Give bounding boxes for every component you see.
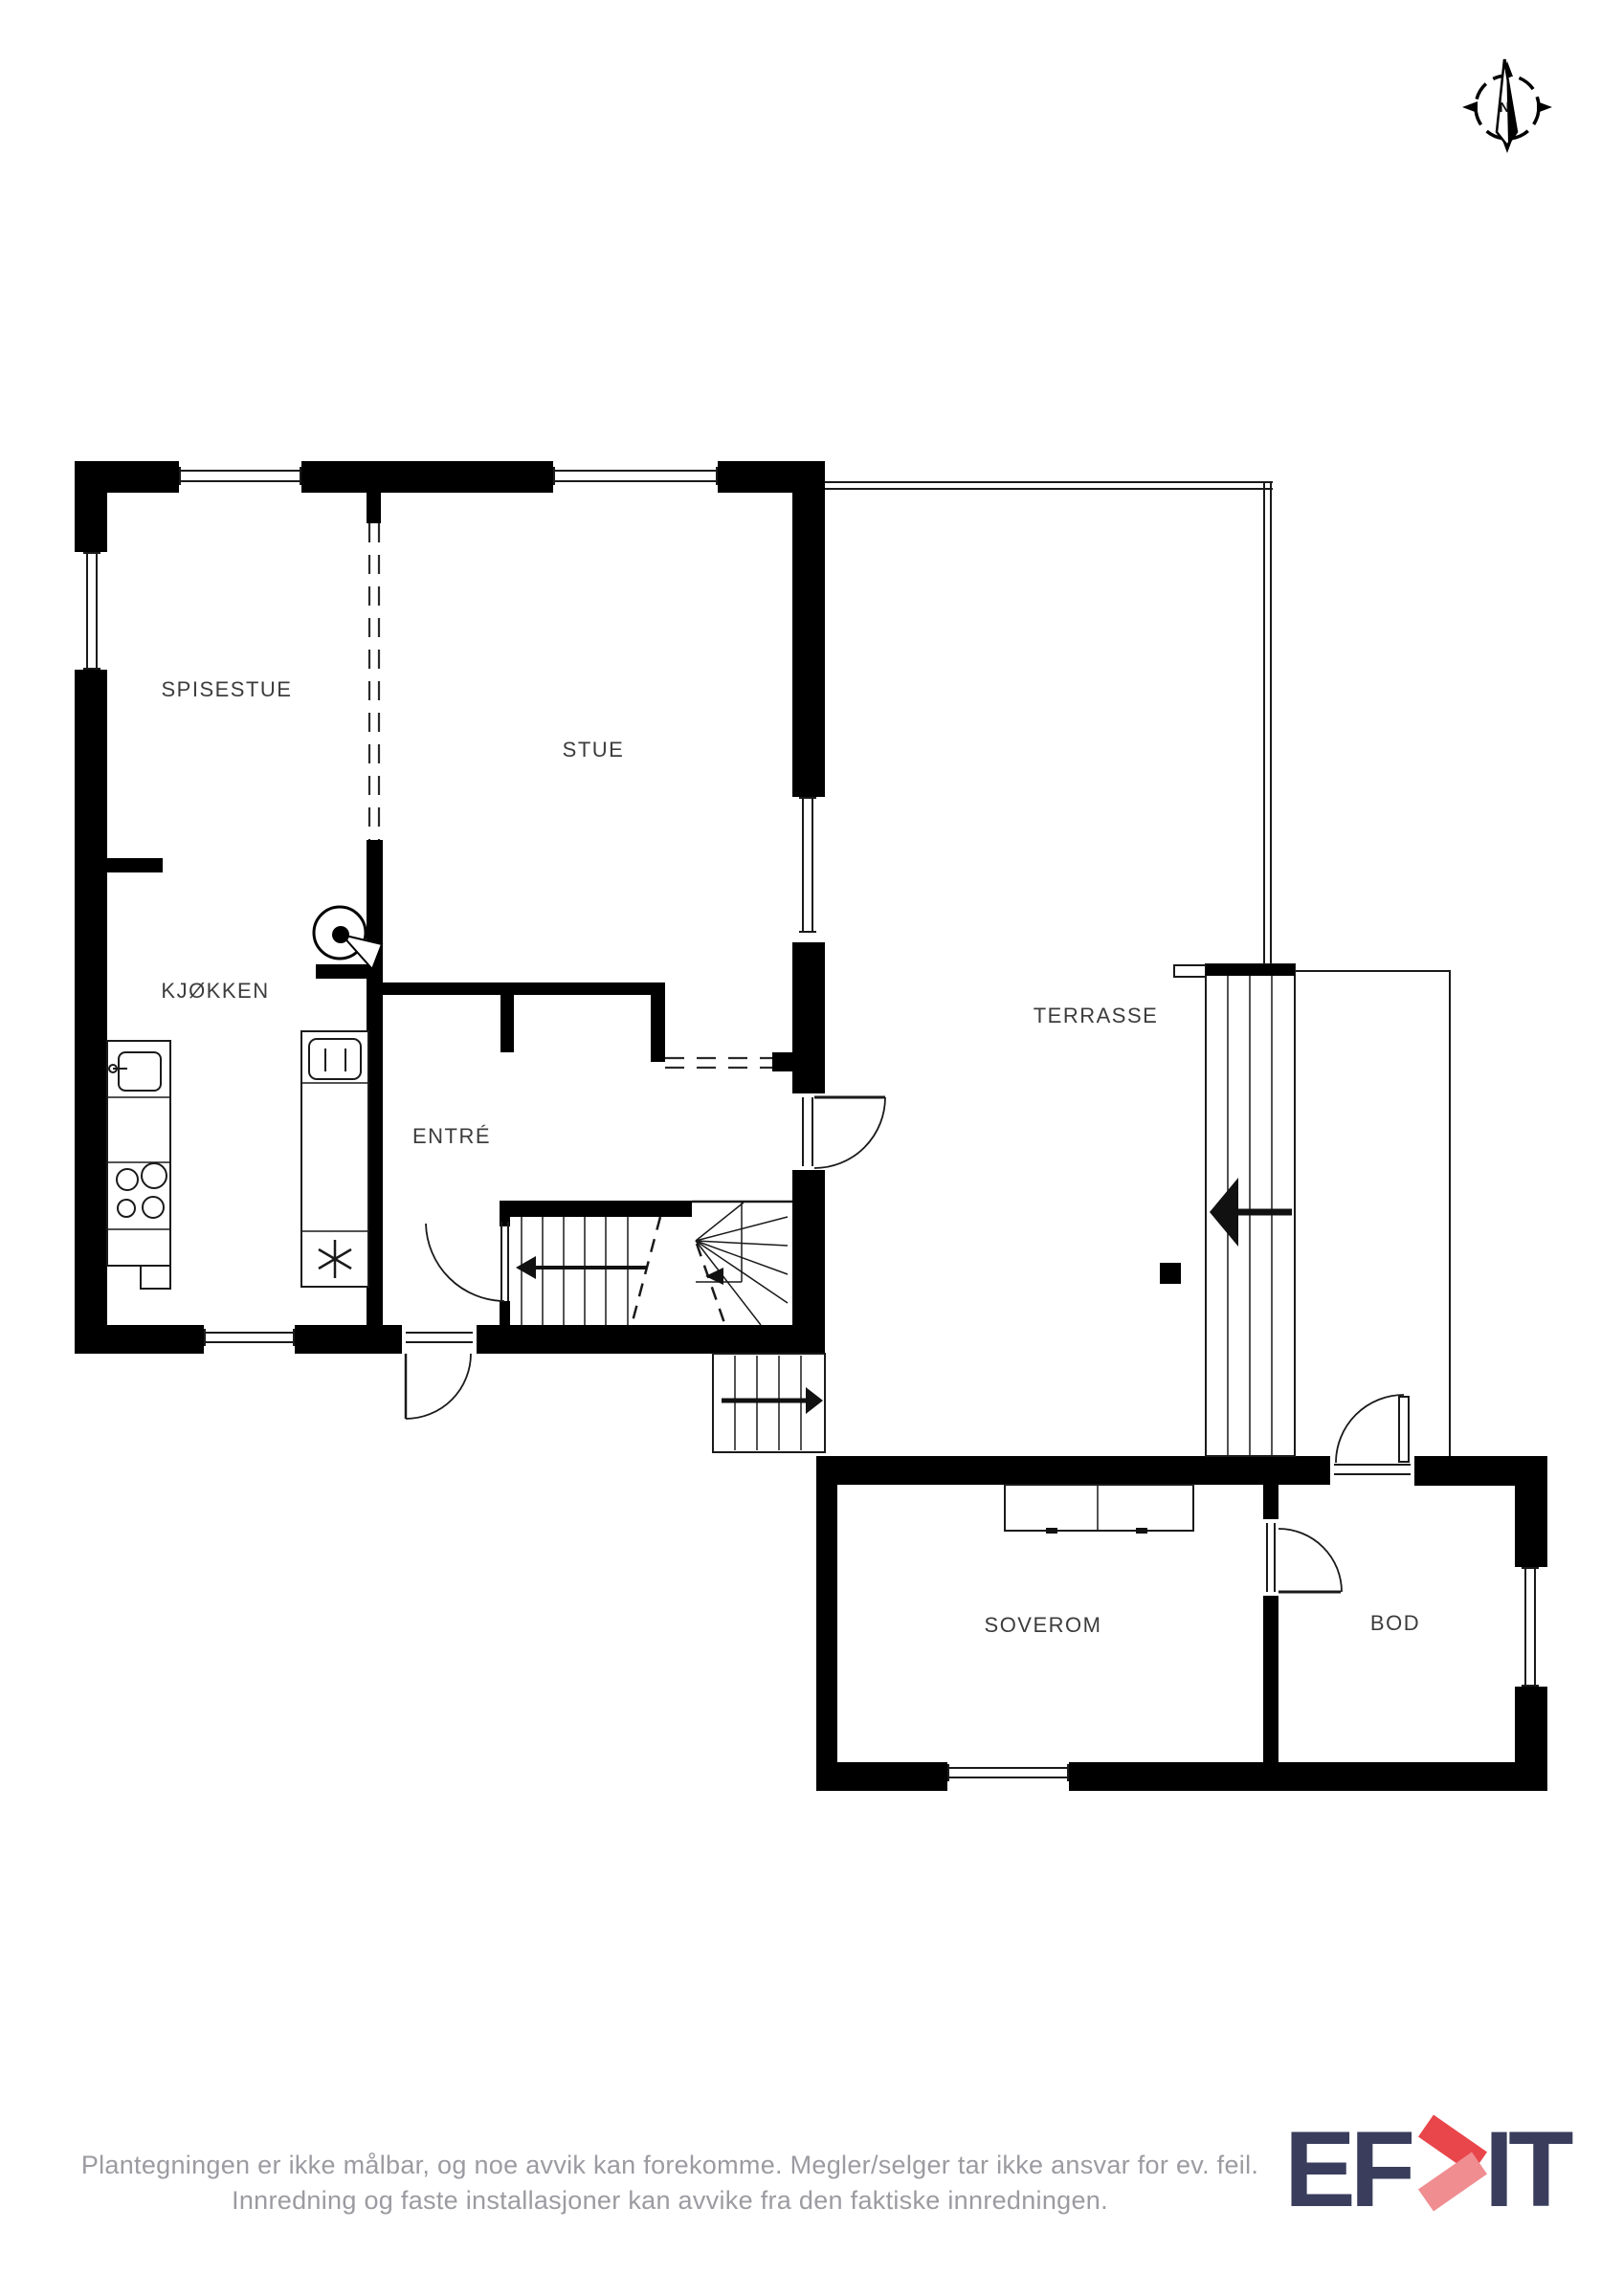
terrace-stairs	[1174, 964, 1295, 1456]
wall-segment	[792, 461, 825, 797]
wall-segment	[816, 1762, 947, 1791]
stair-door	[426, 1222, 508, 1301]
room-label-stue: STUE	[563, 738, 625, 762]
wall-segment	[367, 493, 381, 523]
wall-segment	[75, 670, 107, 1354]
entrance-door	[803, 1097, 885, 1168]
wall-segment	[477, 1325, 825, 1354]
disclaimer: Plantegningen er ikke målbar, og noe avv…	[81, 2151, 1258, 2215]
wall-segment	[500, 995, 514, 1052]
wall-segment	[316, 964, 367, 979]
wall-segment	[107, 858, 163, 872]
room-label-spisestue: SPISESTUE	[162, 677, 293, 701]
wall-segment	[75, 1325, 204, 1354]
wall-segment	[500, 1301, 510, 1325]
room-label-bod: BOD	[1370, 1611, 1420, 1635]
window	[799, 797, 816, 933]
compass-north-label: N	[1500, 99, 1510, 116]
wall-segment	[301, 461, 553, 493]
floorplan-page: SPISESTUE STUE KJØKKEN ENTRÉ TERRASSE SO…	[0, 0, 1623, 2296]
wall-segment	[75, 461, 107, 552]
wall-segment	[381, 982, 665, 995]
wall-segment	[1515, 1485, 1547, 1567]
wall-segment	[295, 1325, 402, 1354]
wall-segment	[816, 1485, 837, 1762]
efkt-chevron-icon-lower	[1426, 2163, 1479, 2200]
room-label-entre: ENTRÉ	[412, 1124, 491, 1148]
stair-arrow	[516, 1256, 536, 1279]
window	[553, 467, 718, 485]
wall-segment	[1263, 1596, 1278, 1762]
room-label-kjokken: KJØKKEN	[161, 979, 269, 1003]
wall-segment	[1515, 1687, 1547, 1762]
floor-plan-svg: SPISESTUE STUE KJØKKEN ENTRÉ TERRASSE SO…	[0, 0, 1623, 2296]
counter-end	[141, 1266, 170, 1289]
terrace	[825, 482, 1451, 1456]
disclaimer-line2: Innredning og faste installasjoner kan a…	[232, 2186, 1108, 2215]
bod-door	[1267, 1523, 1342, 1592]
south-exterior-door	[406, 1333, 473, 1419]
wall-segment	[1414, 1456, 1547, 1486]
wall-segment	[1069, 1762, 1547, 1791]
wall-segment	[651, 995, 665, 1062]
wall-segment	[1263, 1485, 1278, 1519]
terrace-block-door	[1334, 1395, 1411, 1474]
compass-icon: N	[1462, 59, 1552, 153]
wall-segment	[816, 1456, 1330, 1485]
disclaimer-line1: Plantegningen er ikke målbar, og noe avv…	[81, 2151, 1258, 2179]
wardrobe	[1005, 1485, 1193, 1534]
wall-segment	[792, 942, 825, 1093]
room-label-terrasse: TERRASSE	[1034, 1004, 1159, 1027]
wall-segment	[792, 1170, 825, 1325]
window	[83, 552, 100, 670]
kitchen-fixtures	[107, 1031, 368, 1289]
window	[947, 1764, 1069, 1781]
logo-text-it: IT	[1484, 2109, 1573, 2229]
wall-segment	[500, 1201, 692, 1217]
wall-segment	[772, 1052, 792, 1071]
interior-stairs	[516, 1202, 792, 1325]
dishwasher-icon	[309, 1039, 361, 1079]
window	[179, 467, 301, 485]
logo-text-ef: EF	[1284, 2109, 1412, 2229]
sink	[119, 1052, 161, 1091]
room-label-soverom: SOVEROM	[985, 1613, 1102, 1637]
terrace-post	[1160, 1263, 1181, 1284]
efkt-logo: EF IT	[1284, 2109, 1573, 2229]
exterior-steps	[713, 1354, 825, 1452]
window	[1522, 1567, 1539, 1687]
window	[204, 1329, 295, 1346]
